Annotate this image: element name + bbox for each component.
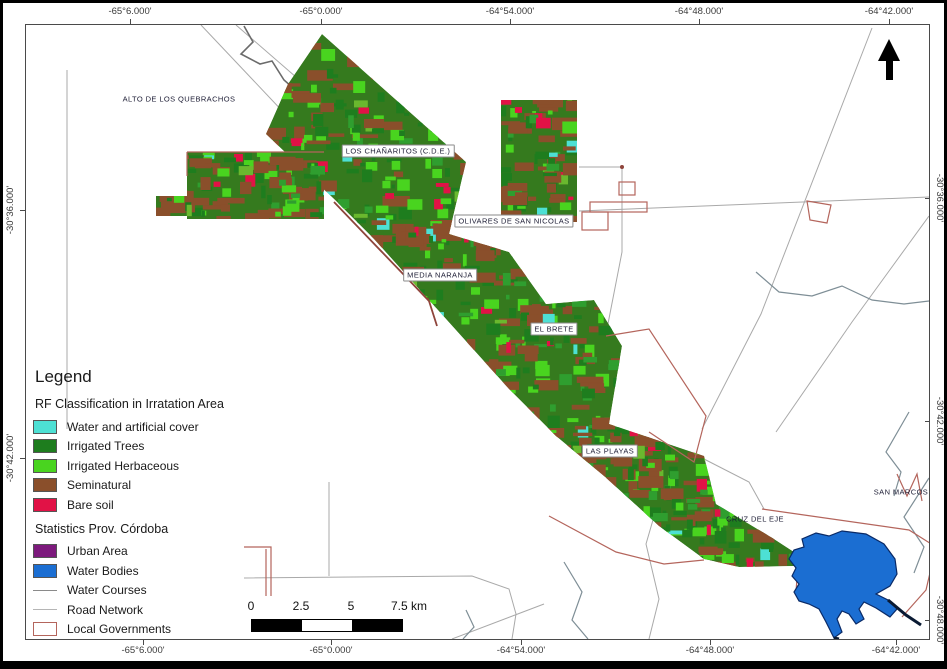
raster-patch: [239, 166, 253, 175]
raster-patch: [430, 413, 450, 418]
raster-patch: [432, 169, 442, 178]
raster-patch: [562, 296, 572, 300]
raster-patch: [445, 116, 456, 124]
raster-patch: [599, 501, 614, 511]
raster-patch: [563, 146, 576, 150]
raster-patch: [599, 326, 613, 335]
raster-patch: [473, 451, 485, 455]
scalebar-number: 0: [248, 599, 255, 613]
raster-patch: [184, 169, 196, 173]
raster-patch: [382, 181, 390, 188]
raster-patch: [547, 164, 560, 171]
raster-patch: [592, 418, 615, 430]
legend-item-label: Water Courses: [67, 583, 147, 597]
raster-patch: [498, 167, 512, 173]
raster-patch: [378, 92, 385, 101]
raster-patch: [511, 425, 522, 437]
raster-patch: [222, 188, 231, 197]
raster-patch: [459, 449, 475, 455]
raster-patch: [512, 245, 524, 257]
raster-patch: [424, 357, 445, 363]
raster-patch: [729, 542, 740, 548]
axis-label-right: -30°36.000': [934, 174, 945, 222]
raster-patch: [557, 532, 574, 535]
raster-patch: [593, 515, 601, 520]
raster-patch: [174, 195, 184, 203]
raster-patch: [385, 177, 396, 181]
place-label: CRUZ DEL EJE: [726, 515, 784, 524]
raster-patch: [497, 437, 518, 449]
raster-patch: [431, 114, 437, 118]
raster-patch: [201, 211, 205, 217]
scalebar-number: 2.5: [293, 599, 310, 613]
axis-label-top: -65°6.000': [108, 6, 151, 17]
legend-item: Urban Area: [33, 542, 268, 562]
legend-item-label: Road Network: [67, 603, 143, 617]
raster-patch: [283, 206, 292, 216]
raster-patch: [539, 250, 544, 254]
raster-patch: [552, 303, 555, 308]
raster-patch: [603, 488, 617, 492]
raster-patch: [224, 158, 236, 163]
raster-patch: [509, 308, 516, 318]
raster-patch: [321, 49, 335, 61]
raster-patch: [642, 521, 647, 529]
raster-patch: [400, 376, 407, 385]
raster-patch: [399, 431, 419, 437]
water-body-reservoir: [789, 531, 921, 639]
raster-patch: [559, 374, 572, 385]
raster-patch: [574, 315, 582, 319]
raster-patch: [417, 70, 429, 81]
raster-patch: [392, 161, 401, 170]
raster-patch: [559, 468, 572, 471]
raster-patch: [438, 244, 444, 250]
raster-patch: [425, 250, 430, 258]
axis-label-top: -64°42.000': [865, 6, 913, 17]
raster-patch: [347, 169, 359, 174]
raster-patch: [457, 366, 478, 376]
raster-patch: [438, 312, 444, 319]
raster-patch: [429, 236, 433, 243]
raster-patch: [659, 422, 663, 428]
raster-patch: [453, 46, 461, 51]
raster-patch: [372, 158, 375, 162]
legend-item: Water Courses: [33, 581, 268, 601]
raster-patch: [653, 513, 668, 521]
raster-patch: [746, 502, 755, 514]
raster-patch: [217, 198, 244, 204]
raster-patch: [311, 85, 317, 93]
legend-item: Bare soil: [33, 495, 268, 515]
raster-patch: [279, 180, 286, 186]
raster-patch: [770, 493, 779, 499]
raster-patch: [461, 317, 469, 324]
raster-patch: [457, 407, 465, 415]
raster-patch: [449, 441, 458, 453]
raster-patch: [377, 53, 386, 61]
raster-patch: [254, 232, 260, 236]
raster-patch: [594, 307, 618, 310]
raster-patch: [628, 468, 634, 480]
raster-patch: [476, 396, 490, 408]
raster-patch: [502, 177, 508, 186]
raster-patch: [482, 419, 485, 431]
axis-label-bottom: -64°54.000': [497, 645, 545, 656]
raster-patch: [444, 128, 450, 137]
raster-patch: [555, 344, 562, 349]
axis-label-bottom: -65°6.000': [121, 645, 164, 656]
raster-patch: [671, 426, 692, 438]
raster-patch: [578, 467, 584, 472]
raster-patch: [472, 384, 485, 395]
axis-label-bottom: -64°48.000': [686, 645, 734, 656]
raster-patch: [397, 179, 410, 190]
raster-patch: [583, 276, 593, 284]
raster-patch: [270, 141, 279, 153]
raster-patch: [570, 254, 573, 259]
raster-patch: [439, 352, 448, 364]
raster-patch: [460, 351, 474, 357]
raster-patch: [418, 123, 423, 127]
raster-patch: [518, 346, 539, 355]
axis-label-left: -30°42.000': [5, 434, 16, 482]
axis-tick-bottom: [331, 640, 332, 645]
legend-section-heading: RF Classification in Irratation Area: [35, 397, 268, 411]
raster-patch: [491, 235, 518, 240]
raster-patch: [579, 224, 594, 231]
raster-patch: [245, 153, 252, 161]
legend-item-label: Irrigated Trees: [67, 439, 144, 453]
raster-patch: [259, 43, 272, 53]
raster-patch: [468, 361, 484, 366]
legend-swatch-fill: [33, 564, 57, 578]
raster-patch: [270, 157, 296, 165]
raster-patch: [184, 191, 194, 202]
raster-patch: [257, 149, 271, 157]
raster-patch: [597, 280, 609, 284]
raster-patch: [506, 295, 510, 300]
legend-swatch-fill: [33, 478, 57, 492]
raster-patch: [406, 331, 433, 339]
raster-patch: [708, 435, 717, 438]
raster-patch: [448, 74, 465, 78]
raster-patch: [630, 430, 639, 436]
raster-patch: [681, 429, 695, 442]
raster-patch: [614, 457, 633, 467]
legend-item-label: Bare soil: [67, 498, 114, 512]
raster-patch: [407, 199, 422, 210]
raster-patch: [454, 147, 468, 160]
raster-patch: [400, 369, 424, 381]
raster-patch: [332, 103, 347, 106]
raster-patch: [498, 99, 511, 105]
raster-patch: [297, 43, 322, 50]
axis-tick-top: [130, 19, 131, 24]
raster-patch: [574, 494, 580, 502]
raster-patch: [391, 81, 399, 93]
raster-patch: [782, 495, 804, 503]
raster-patch: [549, 242, 559, 252]
axis-tick-right: [925, 620, 930, 621]
raster-patch: [467, 438, 476, 448]
raster-patch: [437, 209, 448, 219]
raster-patch: [699, 547, 718, 553]
raster-patch: [292, 58, 300, 67]
raster-patch: [348, 115, 354, 128]
raster-patch: [442, 239, 447, 242]
raster-patch: [313, 114, 323, 127]
raster-patch: [410, 352, 424, 362]
raster-patch: [529, 243, 543, 246]
raster-patch: [567, 418, 578, 422]
place-label: EL BRETE: [530, 323, 577, 336]
raster-patch: [560, 475, 572, 485]
raster-patch: [459, 70, 469, 75]
raster-patch: [567, 235, 580, 243]
legend-swatch-outline: [33, 622, 57, 636]
raster-patch: [769, 525, 786, 535]
raster-patch: [722, 554, 734, 563]
raster-patch: [392, 185, 395, 189]
raster-patch: [437, 431, 447, 439]
raster-patch: [710, 474, 713, 483]
raster-patch: [589, 326, 600, 332]
raster-patch: [460, 64, 469, 75]
raster-patch: [392, 91, 395, 95]
raster-patch: [254, 161, 269, 173]
raster-patch: [575, 426, 586, 430]
raster-patch: [457, 382, 461, 393]
raster-patch: [616, 518, 638, 529]
raster-patch: [705, 453, 713, 460]
raster-patch: [549, 236, 572, 243]
axis-label-bottom: -64°42.000': [872, 645, 920, 656]
raster-patch: [688, 564, 699, 570]
raster-patch: [700, 538, 705, 544]
raster-patch: [735, 529, 744, 542]
raster-patch: [567, 507, 576, 511]
raster-patch: [436, 97, 449, 104]
raster-patch: [511, 436, 523, 446]
raster-patch: [467, 339, 475, 350]
raster-patch: [416, 97, 441, 105]
raster-patch: [598, 256, 604, 263]
raster-patch: [557, 477, 571, 481]
raster-patch: [471, 438, 481, 444]
raster-patch: [221, 204, 230, 211]
raster-patch: [665, 455, 675, 461]
raster-patch: [161, 201, 185, 213]
raster-patch: [610, 499, 620, 504]
raster-patch: [441, 198, 452, 204]
raster-patch: [299, 226, 305, 239]
raster-patch: [696, 464, 710, 476]
raster-patch: [572, 277, 595, 283]
raster-patch: [296, 239, 311, 244]
raster-patch: [401, 98, 407, 103]
raster-patch: [441, 69, 445, 78]
place-label: MEDIA NARANJA: [403, 269, 477, 282]
raster-patch: [560, 202, 571, 210]
raster-patch: [506, 342, 511, 353]
raster-patch: [673, 511, 686, 515]
raster-patch: [392, 391, 401, 403]
raster-patch: [394, 172, 403, 178]
raster-patch: [561, 457, 569, 465]
raster-patch: [389, 366, 413, 374]
raster-patch: [328, 133, 344, 137]
raster-patch: [577, 519, 592, 529]
raster-patch: [217, 168, 229, 176]
raster-patch: [330, 88, 337, 94]
raster-patch: [581, 237, 602, 249]
raster-patch: [558, 465, 566, 468]
raster-patch: [372, 128, 384, 133]
raster-patch: [539, 136, 555, 143]
raster-patch: [474, 392, 488, 398]
raster-patch: [319, 181, 337, 192]
axis-tick-top: [699, 19, 700, 24]
raster-patch: [360, 163, 365, 167]
scalebar-bar: [251, 619, 403, 632]
raster-patch: [644, 506, 650, 518]
raster-patch: [372, 220, 387, 225]
raster-patch: [471, 236, 474, 248]
raster-patch: [695, 511, 712, 521]
raster-patch: [588, 527, 616, 539]
raster-patch: [484, 299, 499, 308]
raster-patch: [365, 207, 373, 213]
raster-patch: [284, 40, 304, 48]
raster-patch: [461, 419, 465, 422]
raster-patch: [475, 383, 487, 392]
raster-patch: [546, 529, 557, 537]
raster-patch: [565, 507, 578, 517]
raster-patch: [353, 81, 365, 93]
legend-item: Water and artificial cover: [33, 417, 268, 437]
raster-patch: [354, 214, 368, 218]
raster-patch: [444, 138, 455, 144]
raster-patch: [394, 307, 404, 316]
raster-patch: [516, 368, 520, 379]
raster-patch: [604, 251, 617, 260]
raster-patch: [489, 359, 498, 368]
raster-patch: [216, 216, 230, 221]
raster-patch: [573, 433, 592, 436]
raster-patch: [562, 122, 577, 134]
raster-patch: [538, 268, 541, 273]
raster-patch: [499, 405, 520, 412]
raster-patch: [263, 57, 267, 62]
raster-patch: [604, 250, 610, 261]
raster-patch: [407, 283, 412, 296]
raster-patch: [411, 446, 416, 454]
raster-patch: [397, 378, 401, 390]
raster-patch: [428, 128, 438, 141]
raster-patch: [709, 472, 733, 479]
raster-patch: [307, 141, 331, 145]
raster-patch: [602, 290, 614, 297]
raster-patch: [430, 63, 441, 69]
raster-patch: [547, 476, 557, 487]
raster-patch: [678, 433, 681, 437]
raster-patch: [203, 205, 222, 209]
raster-patch: [586, 485, 600, 491]
raster-patch: [564, 485, 572, 496]
raster-patch: [467, 234, 492, 241]
axis-label-bottom: -65°0.000': [309, 645, 352, 656]
raster-patch: [452, 67, 465, 75]
raster-patch: [283, 83, 292, 93]
raster-patch: [399, 130, 405, 136]
axis-tick-right: [925, 421, 930, 422]
raster-patch: [596, 510, 608, 514]
scalebar-number: 7.5 km: [391, 599, 427, 613]
raster-patch: [533, 99, 553, 104]
raster-patch: [509, 340, 524, 344]
raster-patch: [572, 405, 590, 410]
raster-patch: [472, 377, 485, 388]
raster-patch: [286, 46, 299, 54]
raster-patch: [715, 509, 721, 516]
raster-patch: [707, 525, 711, 536]
raster-patch: [474, 449, 497, 456]
raster-patch: [482, 283, 494, 286]
raster-patch: [687, 520, 693, 530]
raster-patch: [395, 46, 408, 57]
raster-patch: [639, 425, 651, 438]
raster-patch: [205, 163, 220, 167]
raster-patch: [392, 39, 397, 49]
raster-patch: [444, 187, 451, 193]
raster-patch: [531, 257, 536, 268]
raster-patch: [437, 129, 443, 138]
raster-patch: [557, 304, 566, 308]
raster-patch: [347, 56, 360, 67]
raster-patch: [540, 297, 545, 302]
raster-patch: [559, 446, 573, 459]
raster-patch: [525, 354, 538, 361]
raster-patch: [549, 153, 558, 157]
raster-patch: [682, 530, 692, 538]
raster-patch: [591, 465, 605, 477]
raster-patch: [536, 118, 551, 129]
raster-patch: [573, 446, 582, 454]
raster-patch: [435, 53, 450, 58]
raster-patch: [493, 387, 496, 399]
raster-patch: [478, 399, 492, 404]
raster-patch: [214, 182, 221, 187]
raster-patch: [485, 442, 511, 454]
raster-patch: [453, 412, 463, 417]
axis-label-left: -30°36.000': [5, 186, 16, 234]
raster-patch: [405, 378, 413, 388]
raster-patch: [589, 517, 599, 524]
raster-patch: [465, 39, 470, 43]
raster-patch: [548, 207, 551, 212]
raster-patch: [282, 185, 296, 192]
raster-patch: [567, 477, 580, 484]
axis-label-top: -64°48.000': [675, 6, 723, 17]
axis-tick-bottom: [710, 640, 711, 645]
raster-patch: [789, 527, 795, 538]
raster-patch: [709, 471, 717, 478]
raster-patch: [573, 492, 585, 499]
raster-patch: [775, 496, 789, 501]
raster-patch: [419, 296, 424, 308]
raster-patch: [501, 434, 529, 439]
